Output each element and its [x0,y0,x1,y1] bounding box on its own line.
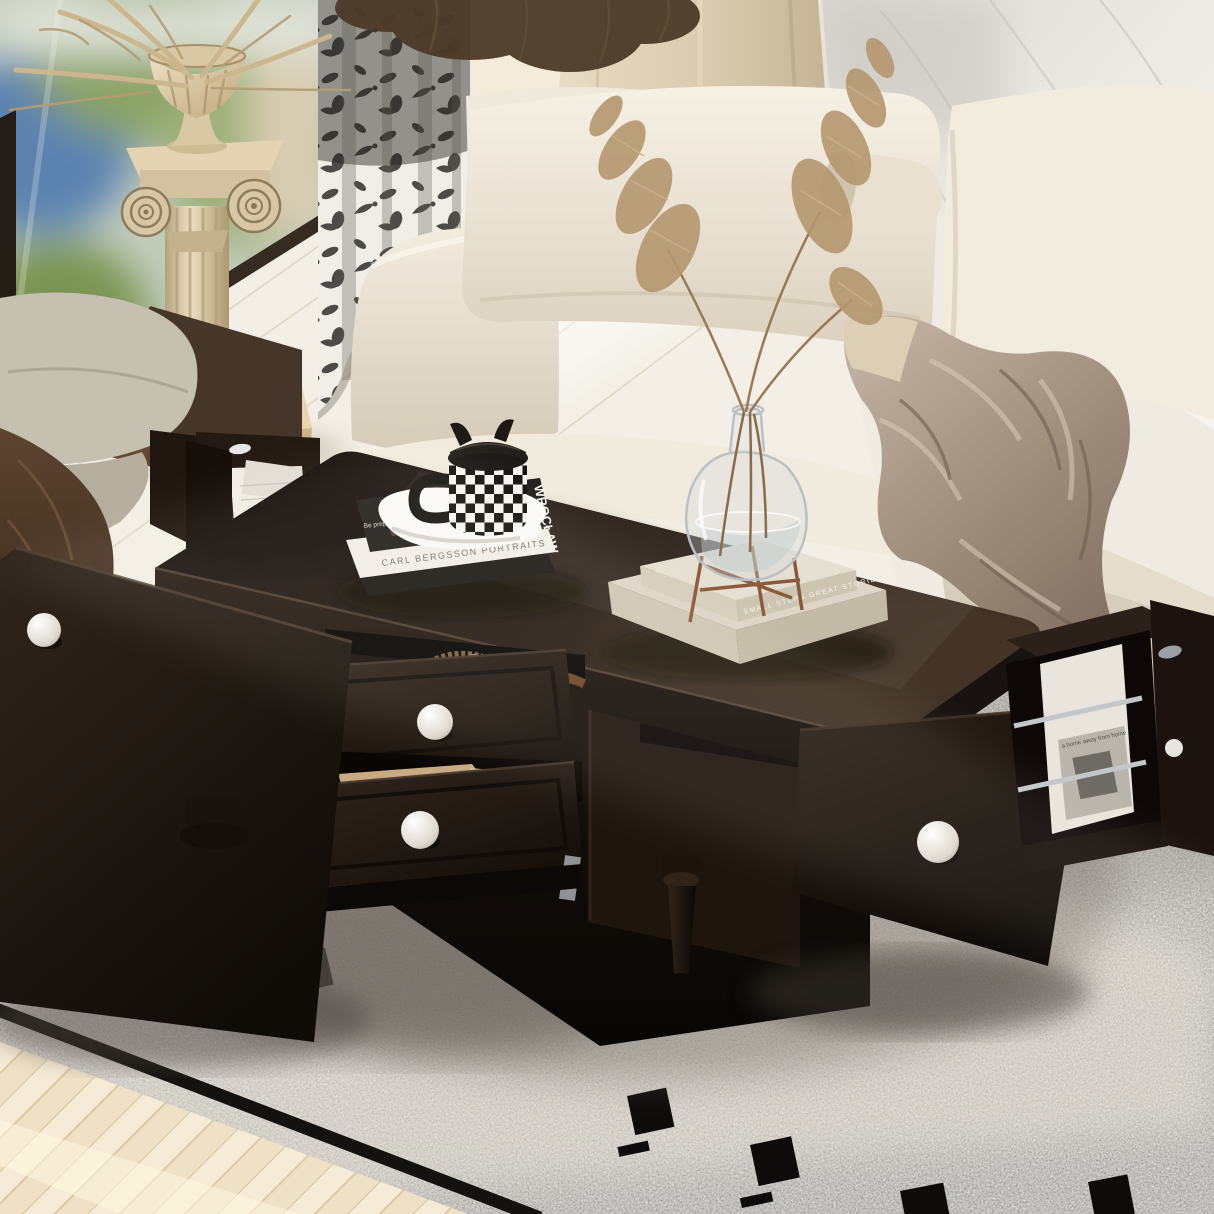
living-room-photo: a home away from home [0,0,1214,1214]
turned-leg-left [180,796,248,849]
volute-right [228,180,280,232]
volute-left [122,188,170,236]
door-right-end-knob [1165,739,1183,757]
